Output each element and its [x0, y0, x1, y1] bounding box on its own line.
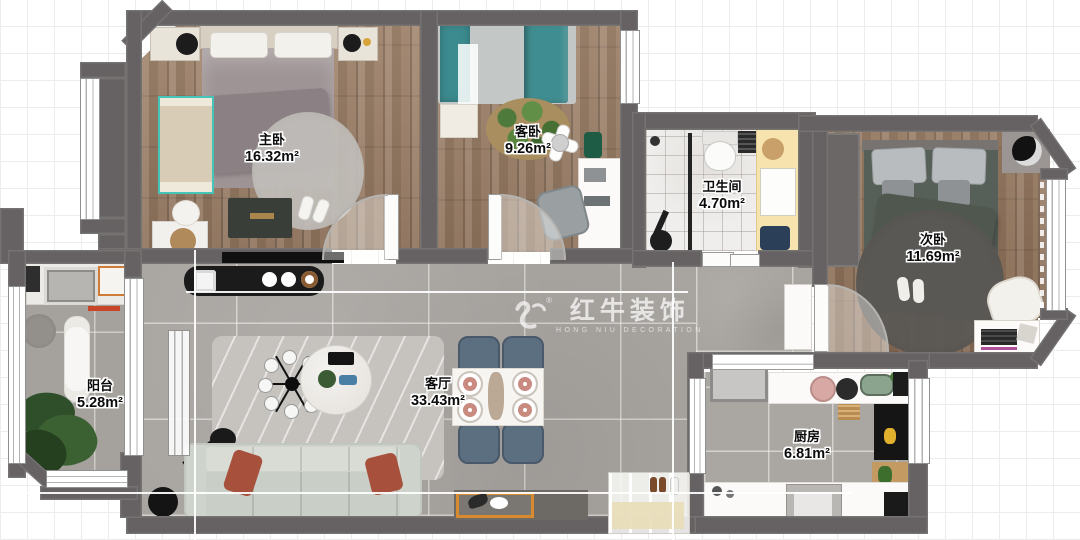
room-area: 5.28m² — [77, 394, 123, 412]
keyboard — [981, 329, 1017, 345]
kitchen-bowl-pink — [810, 376, 836, 402]
guest-ceiling-fan-hub — [551, 134, 569, 152]
foyer-cabinet — [784, 284, 812, 350]
dining-chair-bottom-right — [502, 422, 544, 464]
wall-second-bedroom-west — [812, 115, 828, 287]
console-cup — [301, 271, 318, 288]
master-lamp-left — [176, 33, 198, 55]
sheer-curtain — [1040, 178, 1044, 308]
chandelier-hub — [285, 377, 299, 391]
master-white-stool — [172, 200, 200, 226]
guest-bedside-table — [440, 104, 478, 138]
chandelier-bulb — [282, 350, 297, 365]
desk-accent-strip — [981, 347, 1017, 350]
balcony-sink — [44, 267, 98, 305]
shoe-brown-2 — [659, 477, 666, 493]
dining-plate-4 — [512, 397, 538, 423]
watermark-subtitle: HONG NIU DECORATION — [556, 327, 704, 334]
master-lamp-right — [343, 34, 361, 52]
master-decor-yellow — [363, 38, 371, 46]
balcony-sliding-door-panel-2 — [168, 330, 190, 456]
wall-step-top — [80, 62, 126, 78]
room-name: 客厅 — [411, 376, 465, 392]
wall-bathroom-south-a — [632, 250, 702, 267]
kitchen-black-box — [893, 372, 909, 396]
wall-balcony-pier-top — [124, 250, 142, 278]
bull-logo-icon: ® — [512, 298, 548, 334]
master-window — [80, 78, 100, 220]
dining-chair-bottom-left — [458, 422, 500, 464]
registered-mark: ® — [546, 296, 552, 305]
bathroom-sink — [760, 168, 796, 216]
kitchen-spice-rack — [838, 404, 860, 420]
room-name: 客卧 — [505, 124, 551, 140]
kitchen-sink — [860, 374, 894, 396]
sideboard-flower-decor — [490, 497, 508, 509]
wall-kitchen-south — [687, 516, 928, 534]
room-area: 33.43m² — [411, 392, 465, 410]
bathroom-shower-partition — [688, 133, 692, 251]
bathroom-stool — [762, 138, 784, 160]
bathroom-slider-2 — [730, 254, 760, 267]
room-name: 卫生间 — [699, 179, 745, 195]
label-kitchen: 厨房 6.81m² — [784, 429, 830, 463]
chandelier-bulb — [284, 404, 299, 419]
watermark-title: 红牛装饰 — [570, 299, 690, 324]
room-name: 主卧 — [245, 132, 299, 148]
balcony-dark-box — [24, 266, 40, 292]
kitchen-window — [908, 378, 930, 464]
master-pillow-right — [274, 32, 332, 58]
guest-desk-item-2 — [584, 196, 610, 206]
chandelier-bulb — [264, 358, 279, 373]
wall-pier-west — [98, 78, 126, 218]
chandelier-bulb — [264, 396, 279, 411]
guest-bed-canopy — [458, 44, 478, 104]
balcony-red-strip — [88, 306, 120, 311]
second-slipper-2 — [913, 279, 925, 303]
kitchen-fridge-yellow-decor — [884, 428, 896, 444]
dimension-line-horizontal-1 — [24, 492, 852, 494]
room-area: 16.32m² — [245, 148, 299, 166]
dimension-line-horizontal-2 — [186, 291, 688, 293]
coffee-table-tray — [328, 352, 354, 365]
label-master-bedroom: 主卧 16.32m² — [245, 132, 299, 166]
label-living-room: 客厅 33.43m² — [411, 376, 465, 410]
guest-bed-teal-blanket — [524, 23, 568, 103]
watermark: ® 红牛装饰 HONG NIU DECORATION — [512, 298, 704, 334]
bathroom-navy-chair — [760, 226, 790, 250]
wall-living-north-b — [396, 248, 488, 264]
balcony-stone-decor — [22, 314, 56, 348]
second-bedroom-wardrobe — [826, 133, 860, 267]
wall-balcony-north — [8, 250, 128, 264]
label-bathroom: 卫生间 4.70m² — [699, 179, 745, 213]
room-name: 厨房 — [784, 429, 830, 445]
bathroom-fixture-dot — [650, 136, 660, 146]
guest-desk-item — [584, 168, 606, 182]
dining-centerpiece — [488, 372, 504, 420]
label-balcony: 阳台 5.28m² — [77, 378, 123, 412]
label-second-bedroom: 次卧 11.69m² — [906, 232, 959, 266]
room-area: 6.81m² — [784, 445, 830, 463]
master-pillow-left — [210, 32, 268, 58]
wall-master-guest-divider — [420, 10, 438, 264]
balcony-sliding-door — [124, 278, 144, 456]
room-area: 9.26m² — [505, 140, 551, 158]
room-name: 次卧 — [906, 232, 959, 248]
shoe-brown-1 — [650, 477, 657, 493]
master-console-decor — [250, 213, 274, 219]
kitchen-slider-panel — [689, 378, 706, 474]
room-area: 4.70m² — [699, 195, 745, 213]
coffee-table-plant — [318, 370, 336, 388]
wall-second-bedroom-north — [798, 115, 1038, 132]
master-chaise — [158, 96, 214, 194]
dining-plate-2 — [512, 371, 538, 397]
wall-bathroom-north — [632, 112, 816, 130]
kitchen-kettle — [836, 378, 858, 400]
console-tray — [194, 270, 216, 292]
kitchen-door — [712, 354, 814, 370]
console-plate-2 — [281, 272, 296, 287]
floorplan: ® 红牛装饰 HONG NIU DECORATION 主卧 16.32m² 客卧… — [0, 0, 1080, 540]
wall-north — [126, 10, 638, 26]
wall-master-west — [126, 10, 142, 264]
coffee-table-blue-decor — [339, 375, 357, 385]
wall-step-bottom — [80, 218, 126, 234]
balcony-window-south — [46, 470, 128, 488]
room-name: 阳台 — [77, 378, 123, 394]
dimension-line-vertical-1 — [194, 250, 196, 540]
guest-window — [620, 30, 640, 104]
label-guest-bedroom: 客卧 9.26m² — [505, 124, 551, 158]
toilet-bowl — [704, 141, 736, 171]
guest-green-pillow — [584, 132, 602, 158]
kitchen-knob-1 — [712, 486, 722, 496]
wall-bathroom-south-b — [758, 250, 816, 267]
second-bedroom-mirror-decor — [1012, 136, 1042, 166]
balcony-window-west — [8, 286, 26, 464]
bay-window — [1046, 179, 1066, 311]
console-plate-1 — [262, 272, 277, 287]
kitchen-stove-top — [794, 492, 832, 516]
room-area: 11.69m² — [906, 248, 959, 266]
wall-bathroom-west — [632, 112, 646, 268]
chandelier-bulb — [258, 378, 273, 393]
